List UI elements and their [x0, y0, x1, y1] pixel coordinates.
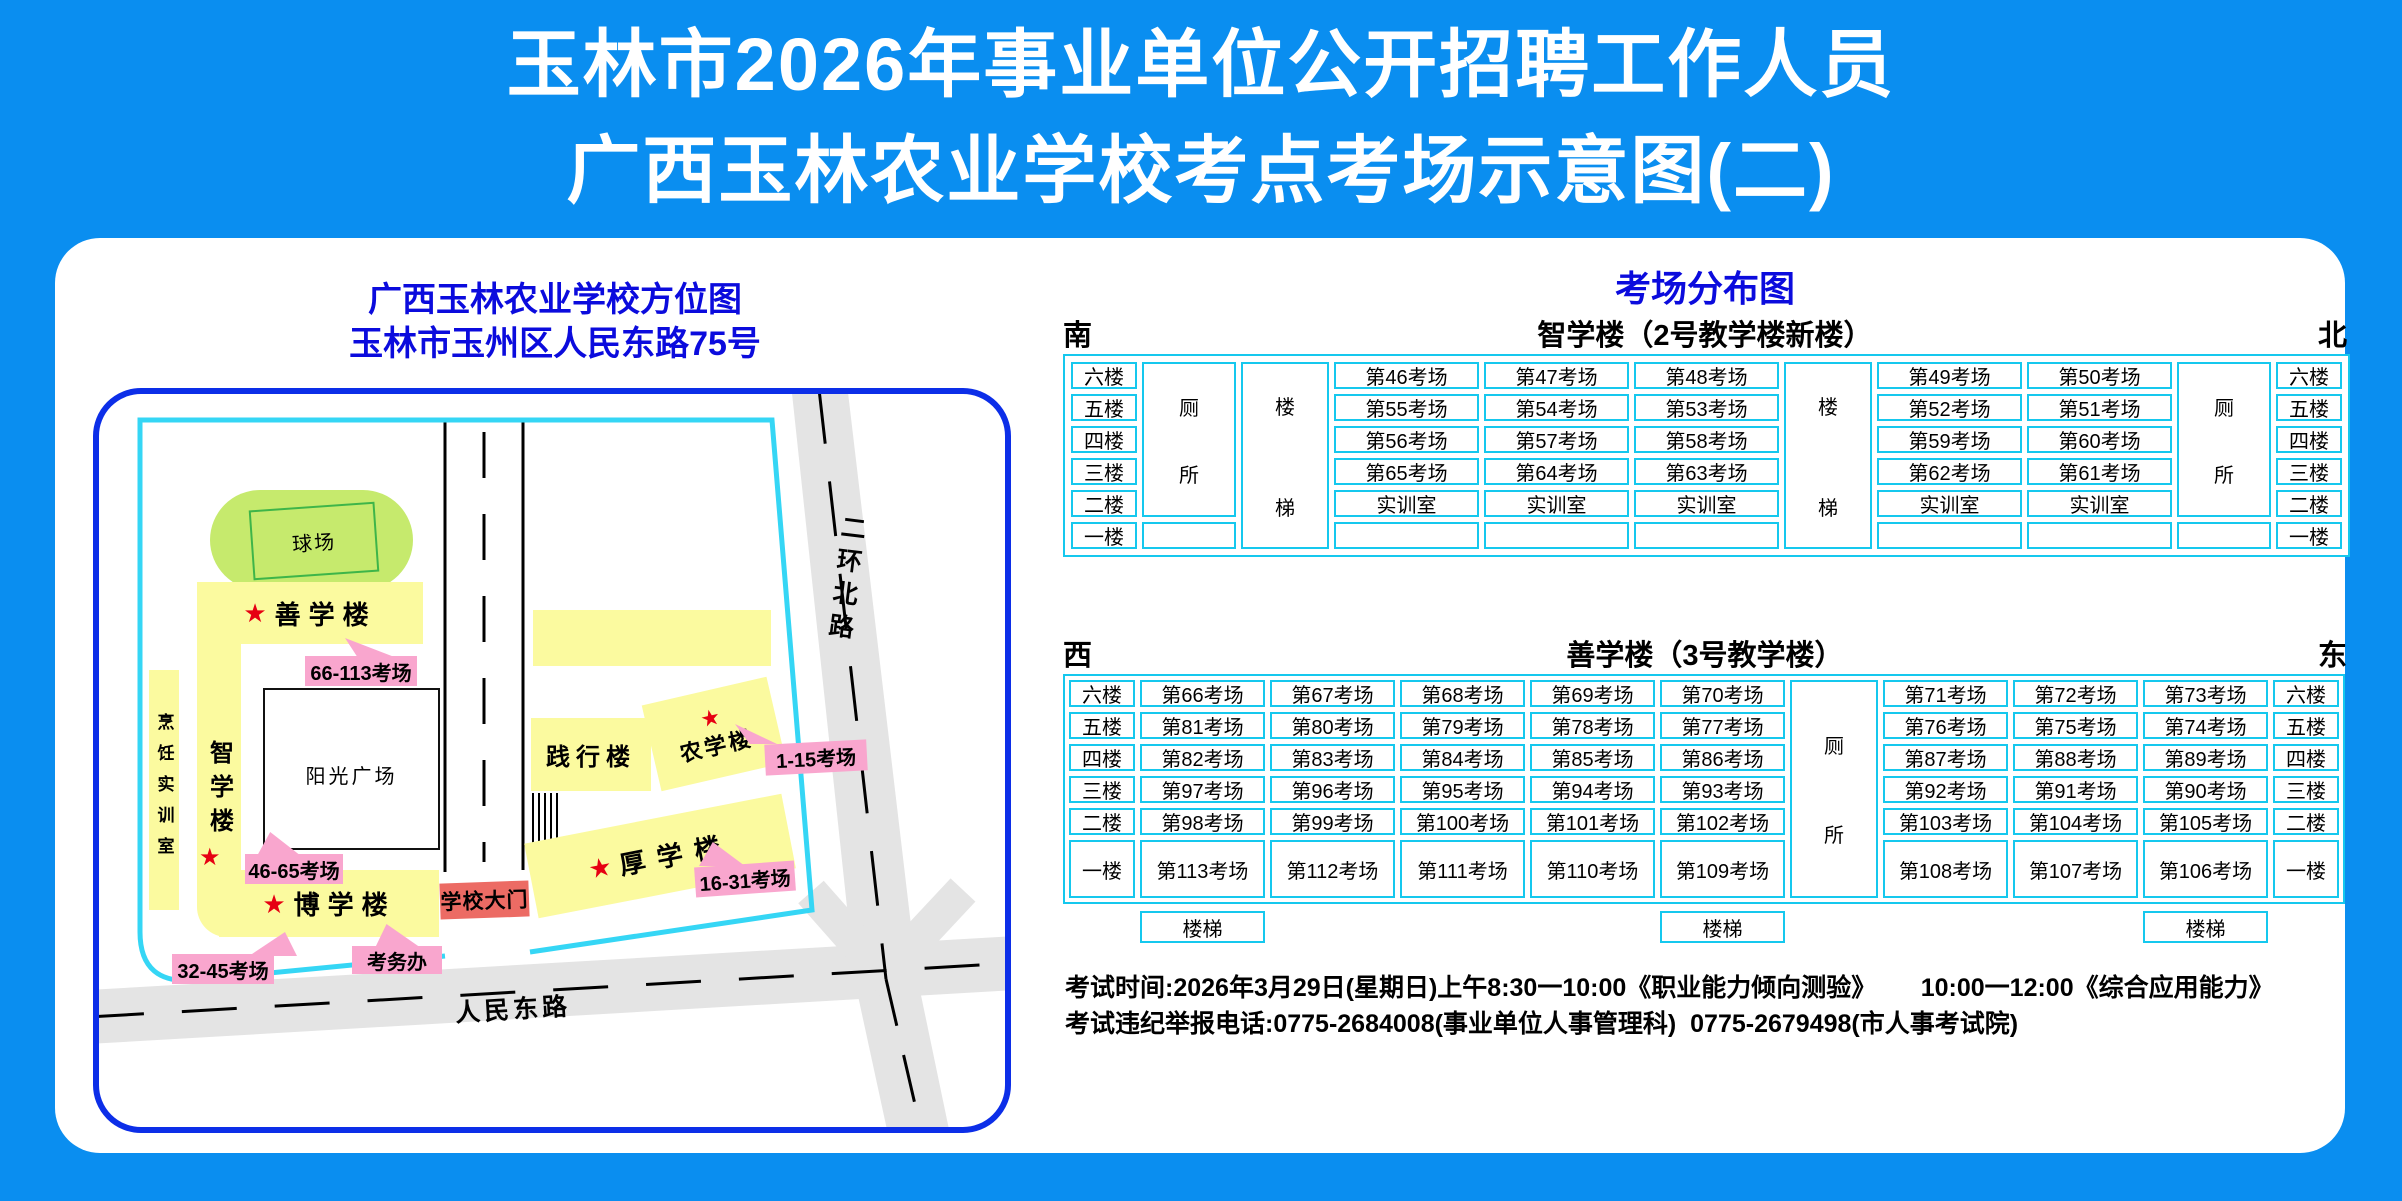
t1-toilet-left: 厕所 [1142, 362, 1236, 517]
road-label-text: 人民东路 [454, 992, 572, 1027]
t2-room-cell: 第79考场 [1400, 712, 1525, 739]
t2-room-cell: 第107考场 [2013, 840, 2138, 898]
t2-room-cell: 第98考场 [1140, 808, 1265, 835]
t1-floor-right: 四楼 [2276, 426, 2342, 453]
t2-room-cell: 第67考场 [1270, 680, 1395, 707]
t2-room-cell: 第100考场 [1400, 808, 1525, 835]
t1-stair-left: 楼梯 [1241, 362, 1329, 549]
star-icon: ★ [586, 853, 614, 883]
t2-floor-left: 六楼 [1069, 680, 1135, 707]
building-shanxue: ★ 善学楼 [197, 582, 423, 644]
building-jianxing-label: 践行楼 [546, 737, 636, 772]
t1-room-cell: 第47考场 [1484, 362, 1629, 389]
t1-floor-left: 二楼 [1071, 490, 1137, 517]
building-nongxue-label: 农学楼 [676, 721, 756, 769]
map-title: 广西玉林农业学校方位图 玉林市玉州区人民东路75号 [115, 278, 995, 366]
t1-floor-right: 一楼 [2276, 522, 2342, 549]
t1-room-cell: 第57考场 [1484, 426, 1629, 453]
t1-room-cell: 第48考场 [1634, 362, 1779, 389]
t2-room-cell: 第80考场 [1270, 712, 1395, 739]
t1-stair-right: 楼梯 [1784, 362, 1872, 549]
label-kaowuban: 考务办 [352, 946, 442, 974]
t2-room-cell: 第106考场 [2143, 840, 2268, 898]
t1-room-cell: 第64考场 [1484, 458, 1629, 485]
sports-field-label: 球场 [291, 525, 337, 557]
t2-room-cell: 第83考场 [1270, 744, 1395, 771]
t2-room-cell: 第104考场 [2013, 808, 2138, 835]
renmin-road-label: 人民东路 [454, 986, 572, 1029]
t2-room-cell: 第94考场 [1530, 776, 1655, 803]
t2-floor-right: 二楼 [2273, 808, 2339, 835]
t1-room-cell: 实训室 [1634, 490, 1779, 517]
char: 所 [1179, 459, 1199, 488]
t2-room-cell: 第99考场 [1270, 808, 1395, 835]
char: 厕 [2214, 392, 2234, 421]
building-pengren: 烹饪实训室 [149, 670, 179, 910]
table1-zhixue: 六楼五楼四楼三楼二楼一楼厕所楼梯第46考场第47考场第48考场第55考场第54考… [1063, 354, 2350, 557]
t2-stair-cell: 楼梯 [2143, 911, 2268, 943]
t2-room-cell: 第71考场 [1883, 680, 2008, 707]
school-gate-label: 学校大门 [440, 883, 529, 916]
label-text: 66-113考场 [310, 657, 411, 686]
t1-room-cell: 第46考场 [1334, 362, 1479, 389]
table2-shanxue: 六楼五楼四楼三楼二楼一楼第66考场第67考场第68考场第69考场第70考场第81… [1063, 674, 2345, 949]
t1-room-cell: 第49考场 [1877, 362, 2022, 389]
t2-room-cell: 第72考场 [2013, 680, 2138, 707]
t1-floor-left: 一楼 [1071, 522, 1137, 549]
t2-floor-left: 一楼 [1069, 840, 1135, 898]
t2-room-cell: 第105考场 [2143, 808, 2268, 835]
t1-room-cell: 第54考场 [1484, 394, 1629, 421]
t1-toilet-right: 厕所 [2177, 362, 2271, 517]
label-text: 46-65考场 [248, 855, 339, 884]
star-icon: ★ [199, 846, 221, 870]
report-phone-line: 考试违纪举报电话:0775-2684008(事业单位人事管理科) 0775-26… [1065, 1006, 2385, 1042]
t1-floor-left: 四楼 [1071, 426, 1137, 453]
t1-room-cell: 第61考场 [2027, 458, 2172, 485]
t1-floor-left: 五楼 [1071, 394, 1137, 421]
t2-floor-left: 二楼 [1069, 808, 1135, 835]
table2-building-name: 善学楼（3号教学楼） [1566, 632, 1843, 674]
campus-map: 球场 ★ 善学楼 智学楼 ★ 烹饪实训室 阳光广场 ★ 博学楼 [93, 388, 1011, 1133]
t1-room-cell: 第50考场 [2027, 362, 2172, 389]
t2-room-cell: 第103考场 [1883, 808, 2008, 835]
t1-toilet-left-empty [1142, 522, 1236, 549]
table1-header: 南 智学楼（2号教学楼新楼） 北 [1063, 312, 2347, 354]
t2-room-cell: 第89考场 [2143, 744, 2268, 771]
content-panel: 广西玉林农业学校方位图 玉林市玉州区人民东路75号 [55, 238, 2345, 1153]
t1-room-cell: 第52考场 [1877, 394, 2022, 421]
t1-room-cell: 实训室 [1877, 490, 2022, 517]
page-title: 玉林市2026年事业单位公开招聘工作人员 广西玉林农业学校考点考场示意图(二) [0, 12, 2402, 224]
label-zhixue-rooms: 46-65考场 [245, 854, 343, 884]
erhuan-road-lower [855, 976, 951, 1127]
char: 梯 [1275, 492, 1295, 521]
t2-room-cell: 第90考场 [2143, 776, 2268, 803]
sunshine-plaza-label: 阳光广场 [306, 760, 398, 789]
table2-header: 西 善学楼（3号教学楼） 东 [1063, 632, 2347, 674]
t2-room-cell: 第76考场 [1883, 712, 2008, 739]
t2-room-cell: 第113考场 [1140, 840, 1265, 898]
t2-room-cell: 第88考场 [2013, 744, 2138, 771]
t2-room-cell: 第110考场 [1530, 840, 1655, 898]
label-boxue-rooms: 32-45考场 [172, 954, 274, 984]
t1-room-cell [1634, 522, 1779, 549]
school-gate: 学校大门 [439, 880, 529, 919]
t2-room-cell: 第73考场 [2143, 680, 2268, 707]
table1-building-name: 智学楼（2号教学楼新楼） [1537, 312, 1872, 354]
map-title-line1: 广西玉林农业学校方位图 [115, 278, 995, 322]
exam-info: 考试时间:2026年3月29日(星期日)上午8:30一10:00《职业能力倾向测… [1065, 970, 2385, 1042]
label-nongxue-rooms: 1-15考场 [764, 739, 867, 775]
t2-room-cell: 第109考场 [1660, 840, 1785, 898]
t1-room-cell: 第56考场 [1334, 426, 1479, 453]
t2-room-cell: 第87考场 [1883, 744, 2008, 771]
label-text: 32-45考场 [177, 955, 268, 984]
t1-room-cell: 实训室 [2027, 490, 2172, 517]
t2-room-cell: 第108考场 [1883, 840, 2008, 898]
char: 厕 [1824, 730, 1844, 759]
building-zhixue-label: 智学楼 [202, 740, 237, 842]
t1-room-cell: 实训室 [1484, 490, 1629, 517]
label-text: 1-15考场 [775, 741, 856, 774]
t1-room-cell: 第62考场 [1877, 458, 2022, 485]
t1-floor-left: 三楼 [1071, 458, 1137, 485]
label-shanxue-rooms: 66-113考场 [305, 656, 417, 686]
sports-field-court: 球场 [249, 502, 380, 581]
t2-room-cell: 第81考场 [1140, 712, 1265, 739]
char: 厕 [1179, 392, 1199, 421]
map-title-line2: 玉林市玉州区人民东路75号 [115, 322, 995, 366]
t1-floor-right: 五楼 [2276, 394, 2342, 421]
exam-site-poster: 玉林市2026年事业单位公开招聘工作人员 广西玉林农业学校考点考场示意图(二) … [0, 0, 2402, 1201]
char: 楼 [1818, 391, 1838, 420]
table2-grid: 六楼五楼四楼三楼二楼一楼第66考场第67考场第68考场第69考场第70考场第81… [1063, 674, 2345, 949]
building-pengren-label: 烹饪实训室 [152, 713, 177, 868]
distribution-title: 考场分布图 [1063, 260, 2347, 312]
star-icon: ★ [243, 600, 266, 626]
sunshine-plaza: 阳光广场 [263, 688, 440, 850]
label-text: 16-31考场 [699, 861, 792, 896]
char: 梯 [1818, 492, 1838, 521]
title-line2: 广西玉林农业学校考点考场示意图(二) [0, 118, 2402, 224]
exam-time-line: 考试时间:2026年3月29日(星期日)上午8:30一10:00《职业能力倾向测… [1065, 970, 2385, 1006]
t2-room-cell: 第78考场 [1530, 712, 1655, 739]
t2-room-cell: 第102考场 [1660, 808, 1785, 835]
t2-room-cell: 第91考场 [2013, 776, 2138, 803]
table2-direction-east: 东 [2318, 632, 2347, 674]
t1-room-cell [1484, 522, 1629, 549]
t2-room-cell: 第68考场 [1400, 680, 1525, 707]
t1-toilet-right-empty [2177, 522, 2271, 549]
t2-room-cell: 第92考场 [1883, 776, 2008, 803]
t1-room-cell: 实训室 [1334, 490, 1479, 517]
t2-room-cell: 第69考场 [1530, 680, 1655, 707]
building-unlabeled [533, 610, 771, 666]
building-shanxue-label: 善学楼 [275, 595, 377, 632]
table1-direction-south: 南 [1063, 312, 1092, 354]
t2-room-cell: 第95考场 [1400, 776, 1525, 803]
t2-floor-left: 四楼 [1069, 744, 1135, 771]
label-text: 考务办 [367, 946, 427, 975]
t1-room-cell: 第53考场 [1634, 394, 1779, 421]
t2-stair-cell: 楼梯 [1140, 911, 1265, 943]
t2-floor-right: 六楼 [2273, 680, 2339, 707]
t1-room-cell: 第55考场 [1334, 394, 1479, 421]
t2-room-cell: 第77考场 [1660, 712, 1785, 739]
t2-room-cell: 第97考场 [1140, 776, 1265, 803]
t1-floor-right: 六楼 [2276, 362, 2342, 389]
t1-room-cell: 第60考场 [2027, 426, 2172, 453]
t2-floor-left: 五楼 [1069, 712, 1135, 739]
t1-room-cell [2027, 522, 2172, 549]
t1-room-cell: 第51考场 [2027, 394, 2172, 421]
t1-room-cell [1334, 522, 1479, 549]
t1-room-cell: 第58考场 [1634, 426, 1779, 453]
star-icon: ★ [262, 891, 285, 917]
char: 所 [1824, 819, 1844, 848]
t2-room-cell: 第85考场 [1530, 744, 1655, 771]
char: 所 [2214, 459, 2234, 488]
t2-room-cell: 第112考场 [1270, 840, 1395, 898]
t2-room-cell: 第86考场 [1660, 744, 1785, 771]
t2-floor-right: 三楼 [2273, 776, 2339, 803]
t2-floor-right: 一楼 [2273, 840, 2339, 898]
t1-floor-right: 三楼 [2276, 458, 2342, 485]
t2-room-cell: 第66考场 [1140, 680, 1265, 707]
t2-room-cell: 第101考场 [1530, 808, 1655, 835]
t1-room-cell: 第65考场 [1334, 458, 1479, 485]
table1-direction-north: 北 [2318, 312, 2347, 354]
title-line1: 玉林市2026年事业单位公开招聘工作人员 [0, 12, 2402, 118]
t1-room-cell: 第59考场 [1877, 426, 2022, 453]
t1-room-cell: 第63考场 [1634, 458, 1779, 485]
t2-room-cell: 第75考场 [2013, 712, 2138, 739]
t1-floor-left: 六楼 [1071, 362, 1137, 389]
t2-room-cell: 第84考场 [1400, 744, 1525, 771]
char: 楼 [1275, 391, 1295, 420]
t2-room-cell: 第70考场 [1660, 680, 1785, 707]
t2-floor-right: 五楼 [2273, 712, 2339, 739]
t2-stair-cell: 楼梯 [1660, 911, 1785, 943]
t2-room-cell: 第111考场 [1400, 840, 1525, 898]
t2-floor-right: 四楼 [2273, 744, 2339, 771]
t2-room-cell: 第93考场 [1660, 776, 1785, 803]
t2-toilet: 厕所 [1790, 680, 1878, 898]
table2-direction-west: 西 [1063, 632, 1092, 674]
t1-floor-right: 二楼 [2276, 490, 2342, 517]
building-jianxing: 践行楼 [531, 718, 651, 791]
t2-room-cell: 第82考场 [1140, 744, 1265, 771]
building-boxue-label: 博学楼 [294, 885, 396, 922]
t2-room-cell: 第96考场 [1270, 776, 1395, 803]
t2-room-cell: 第74考场 [2143, 712, 2268, 739]
t2-floor-left: 三楼 [1069, 776, 1135, 803]
t1-room-cell [1877, 522, 2022, 549]
table1-grid: 六楼五楼四楼三楼二楼一楼厕所楼梯第46考场第47考场第48考场第55考场第54考… [1065, 356, 2348, 555]
